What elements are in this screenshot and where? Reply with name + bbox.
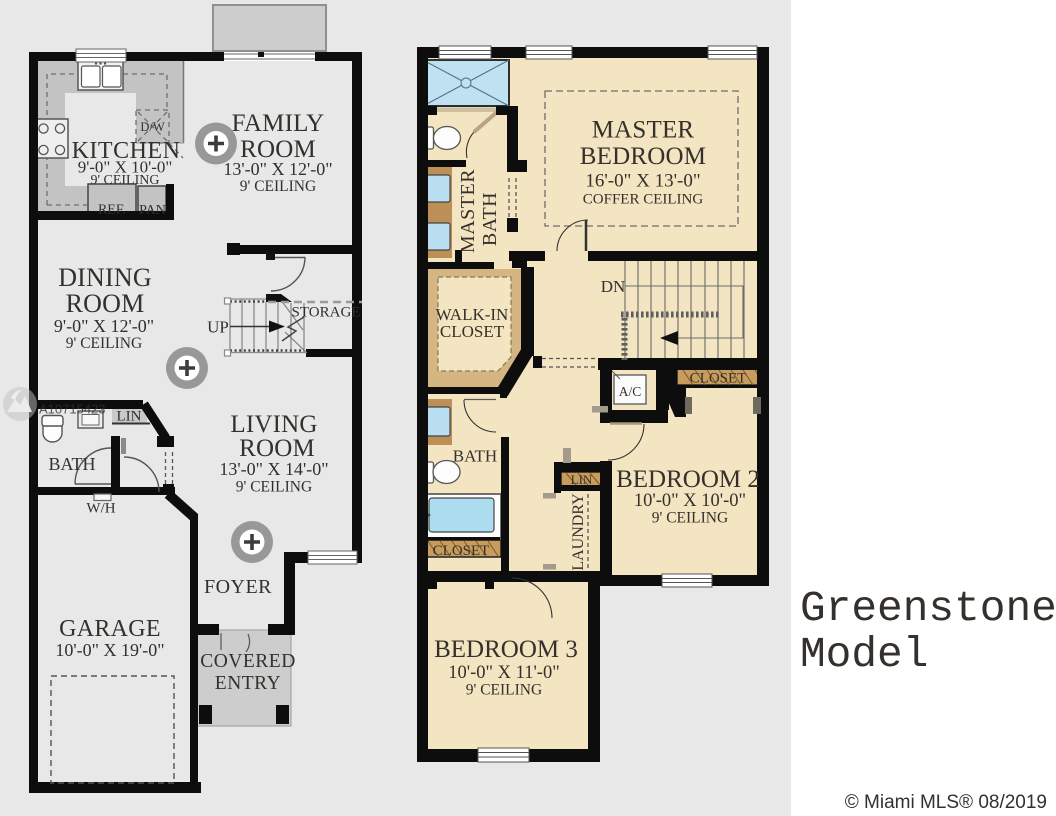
svg-text:REF.: REF. [98,203,126,218]
svg-text:9' CEILING: 9' CEILING [236,479,312,496]
svg-text:DN: DN [601,277,626,296]
svg-text:BEDROOM: BEDROOM [580,143,706,170]
svg-text:UP: UP [207,318,229,337]
svg-text:COVERED: COVERED [200,651,296,672]
svg-text:9' CEILING: 9' CEILING [652,510,728,527]
svg-text:PAN: PAN [139,203,166,218]
svg-text:16'-0" X 13'-0": 16'-0" X 13'-0" [585,171,700,192]
svg-text:9' CEILING: 9' CEILING [466,682,542,699]
svg-text:D/W: D/W [140,120,165,134]
svg-text:FOYER: FOYER [204,576,272,598]
svg-text:13'-0" X 14'-0": 13'-0" X 14'-0" [219,459,328,479]
svg-text:A/C: A/C [619,384,642,399]
svg-text:LIN: LIN [571,472,593,487]
svg-text:9' CEILING: 9' CEILING [240,178,316,195]
svg-text:LIVING: LIVING [230,411,317,438]
svg-text:STORAGE: STORAGE [292,305,361,321]
svg-text:BEDROOM 2: BEDROOM 2 [616,466,760,493]
svg-text:DINING: DINING [58,263,152,292]
svg-text:GARAGE: GARAGE [59,616,161,642]
svg-text:CLOSET: CLOSET [433,543,490,559]
svg-text:BEDROOM 3: BEDROOM 3 [434,636,578,663]
svg-text:10'-0" X 11'-0": 10'-0" X 11'-0" [448,663,560,683]
svg-text:CLOSET: CLOSET [690,371,747,387]
svg-text:9' CEILING: 9' CEILING [66,335,142,352]
svg-text:13'-0" X 12'-0": 13'-0" X 12'-0" [223,159,332,179]
svg-text:ENTRY: ENTRY [215,673,281,694]
svg-text:W/H: W/H [86,501,115,517]
svg-text:BATH: BATH [48,454,95,474]
svg-text:Model: Model [800,630,928,679]
svg-text:LIN: LIN [117,409,142,425]
svg-text:FAMILY: FAMILY [232,110,325,137]
svg-text:BATH: BATH [453,447,497,466]
svg-text:9' CEILING: 9' CEILING [90,173,159,188]
svg-text:9'-0" X 12'-0": 9'-0" X 12'-0" [54,316,154,336]
svg-text:A10715423: A10715423 [39,402,106,417]
svg-text:10'-0" X 10'-0": 10'-0" X 10'-0" [634,491,746,511]
svg-text:ROOM: ROOM [239,435,315,462]
svg-text:© Miami MLS® 08/2019: © Miami MLS® 08/2019 [845,792,1047,813]
svg-text:MASTER: MASTER [592,117,695,144]
svg-text:MASTER: MASTER [457,169,479,253]
svg-text:COFFER CEILING: COFFER CEILING [583,192,704,208]
svg-text:BATH: BATH [479,192,501,246]
svg-text:10'-0" X 19'-0": 10'-0" X 19'-0" [55,640,164,660]
svg-text:Greenstone: Greenstone [800,584,1056,633]
svg-text:ROOM: ROOM [66,289,145,318]
svg-text:LAUNDRY: LAUNDRY [570,493,587,571]
svg-text:CLOSET: CLOSET [440,322,505,341]
